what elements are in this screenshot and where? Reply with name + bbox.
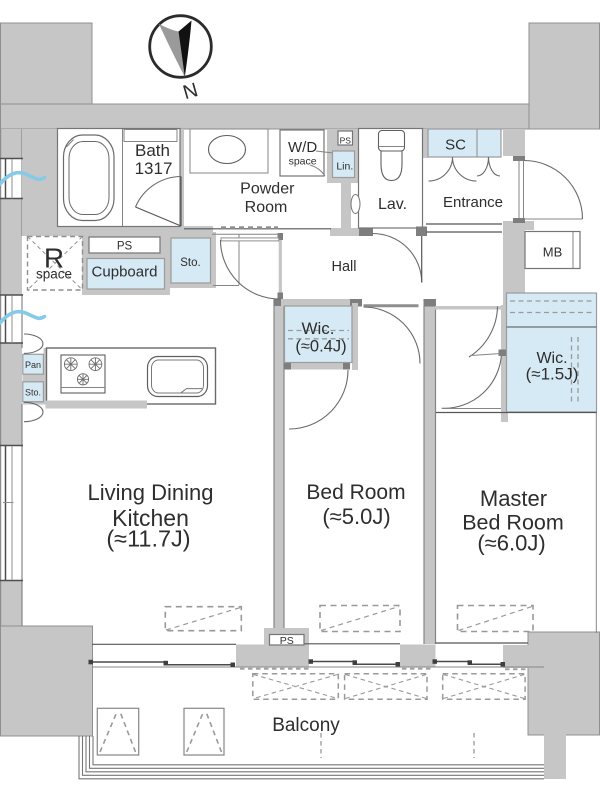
svg-text:(≈1.5J): (≈1.5J) (526, 365, 579, 384)
svg-text:1317: 1317 (135, 159, 173, 178)
svg-text:Pan: Pan (25, 360, 41, 370)
svg-text:Balcony: Balcony (272, 715, 340, 736)
svg-text:PS: PS (340, 136, 352, 146)
svg-text:Living Dining: Living Dining (88, 480, 214, 505)
svg-text:Lin.: Lin. (336, 161, 353, 173)
svg-text:(≈5.0J): (≈5.0J) (322, 504, 390, 529)
svg-text:(≈11.7J): (≈11.7J) (106, 526, 190, 552)
svg-text:Sto.: Sto. (25, 388, 41, 398)
svg-text:PS: PS (280, 635, 294, 647)
svg-text:SC: SC (445, 137, 466, 154)
svg-text:Bed Room: Bed Room (306, 481, 405, 504)
svg-text:Lav.: Lav. (378, 196, 407, 213)
svg-text:Powder: Powder (240, 181, 295, 198)
svg-text:Sto.: Sto. (180, 257, 200, 269)
svg-text:PS: PS (117, 241, 133, 253)
svg-text:Bath: Bath (135, 141, 170, 160)
svg-text:space: space (36, 267, 72, 282)
svg-text:MB: MB (543, 245, 563, 260)
svg-text:Cupboard: Cupboard (92, 264, 158, 281)
svg-text:Wic.: Wic. (301, 319, 334, 338)
svg-text:(≈6.0J): (≈6.0J) (477, 531, 545, 556)
svg-text:Hall: Hall (332, 259, 357, 275)
svg-text:W/D: W/D (288, 139, 317, 156)
svg-text:(≈0.4J): (≈0.4J) (295, 338, 346, 356)
svg-text:Room: Room (245, 199, 288, 216)
svg-text:Entrance: Entrance (443, 194, 503, 211)
svg-text:Master: Master (480, 486, 547, 511)
